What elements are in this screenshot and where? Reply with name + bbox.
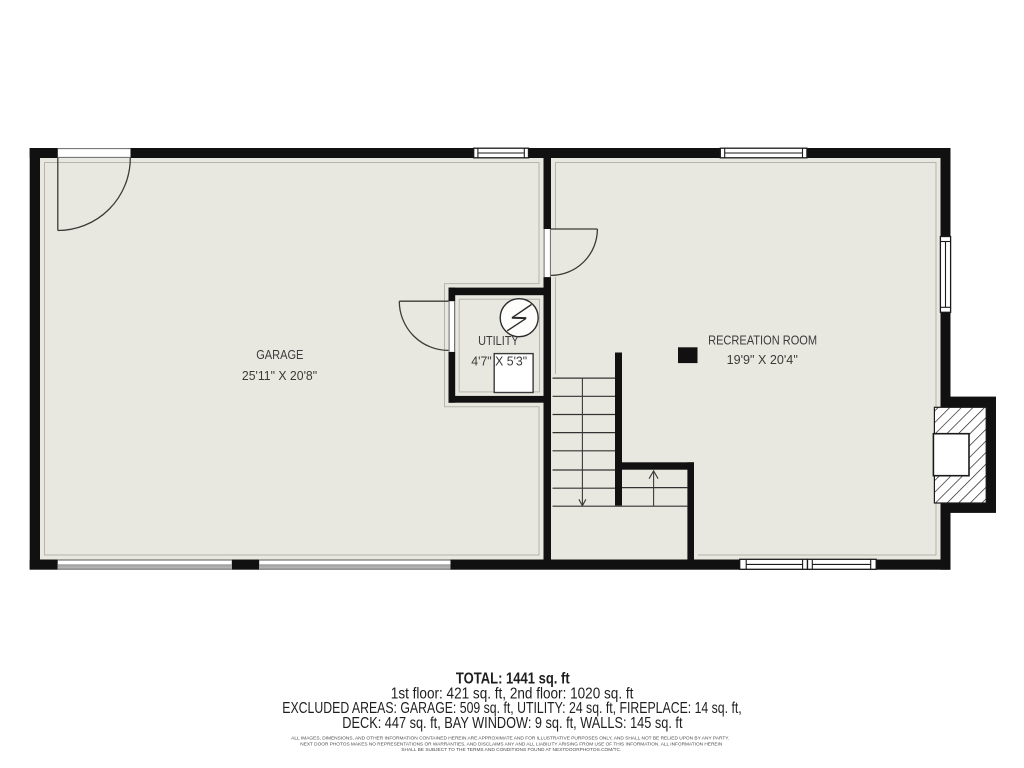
svg-text:DECK: 447 sq. ft, BAY WINDOW:: DECK: 447 sq. ft, BAY WINDOW: 9 sq. ft, …	[342, 715, 683, 732]
svg-text:25'11" X 20'8": 25'11" X 20'8"	[242, 368, 317, 383]
svg-text:UTILITY: UTILITY	[478, 333, 519, 348]
svg-text:4'7" X 5'3": 4'7" X 5'3"	[471, 353, 527, 368]
svg-text:NEXT DOOR PHOTOS MAKES NO REPR: NEXT DOOR PHOTOS MAKES NO REPRESENTATION…	[300, 741, 722, 746]
svg-text:GARAGE: GARAGE	[256, 347, 303, 362]
svg-text:RECREATION ROOM: RECREATION ROOM	[708, 332, 817, 347]
svg-text:SHALL BE SUBJECT TO THE TERMS: SHALL BE SUBJECT TO THE TERMS AND CONDIT…	[401, 747, 621, 752]
svg-text:ALL IMAGES, DIMENSIONS, AND OT: ALL IMAGES, DIMENSIONS, AND OTHER INFORM…	[291, 736, 729, 741]
svg-text:19'9" X 20'4": 19'9" X 20'4"	[727, 352, 799, 367]
